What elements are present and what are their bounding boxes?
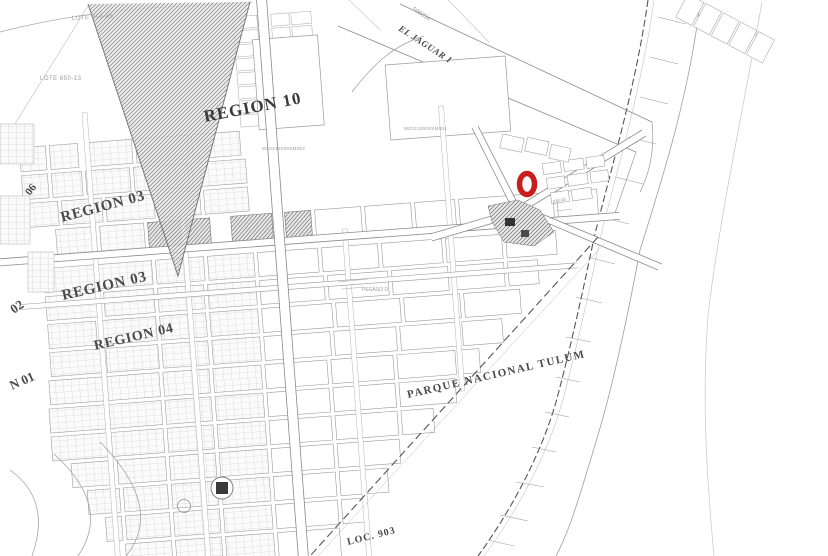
label-region-02-partial: 02 [7, 297, 26, 317]
town-grid [0, 0, 644, 556]
label-lote-650: LOTE 650-13 [40, 76, 82, 82]
label-region-01-partial: N 01 [7, 369, 37, 393]
map-canvas[interactable]: LOTE 850-45 LOTE 650-13 REGION 10 REGION… [0, 0, 828, 556]
coastline [556, 2, 762, 556]
location-marker[interactable] [520, 174, 535, 195]
label-code-505034: 505034 [411, 7, 432, 23]
label-pegaso: PEGASO D [362, 287, 389, 293]
label-mz-code-west: MZ0440056SM002 [262, 146, 305, 151]
map-screenshot: LOTE 850-45 LOTE 650-13 REGION 10 REGION… [0, 0, 828, 556]
label-mz-code-east: MZ0210005SM001 [404, 126, 447, 131]
beach-lots [676, 0, 775, 63]
label-loc-903: LOC. 903 [346, 525, 397, 548]
